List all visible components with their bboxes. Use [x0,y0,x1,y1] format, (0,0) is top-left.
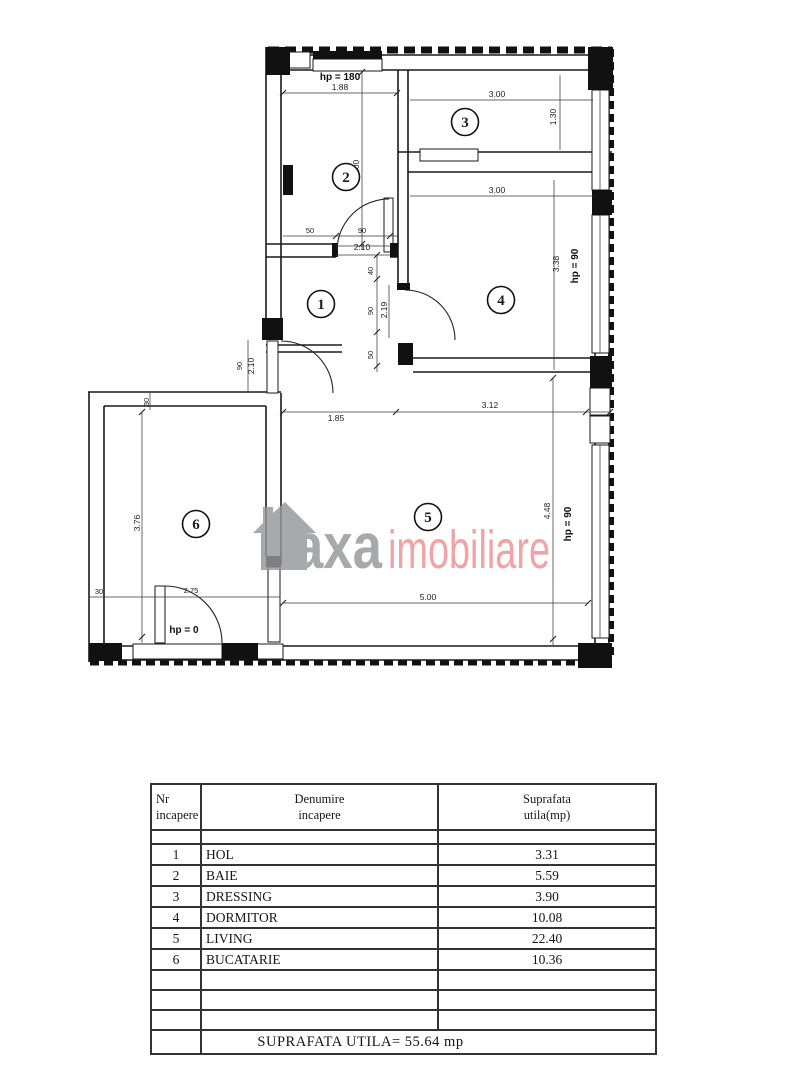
wall-niche [590,388,610,415]
window-bath [313,59,382,71]
dim-30-top: 30 [142,398,151,406]
cell-name: BAIE [201,865,438,886]
header-suprafata-line2: utila(mp) [524,808,571,822]
table-row: 3 DRESSING 3.90 [151,886,656,907]
room-number-4: 4 [497,293,505,309]
cell-area: 22.40 [438,928,656,949]
dim-hp90-bedroom: hp = 90 [570,248,581,283]
cell-area: 3.90 [438,886,656,907]
dim-219: 2.19 [379,301,389,318]
dim-hp0: hp = 0 [169,625,199,636]
dim-500: 5.00 [420,592,437,602]
window-right-top [592,90,609,190]
room-label-6: 6 [183,511,210,538]
cell-area: 10.36 [438,949,656,970]
door-leaf-kitchen [268,567,280,642]
dim-300-dressing: 3.00 [489,89,506,99]
room-label-5: 5 [415,504,442,531]
cell-name: HOL [201,844,438,865]
dim-50: 50 [306,226,314,235]
dim-90: 90 [358,226,366,235]
dim-130: 1.30 [548,108,558,125]
footer-empty-cell [151,1030,201,1054]
room-number-1: 1 [317,297,325,313]
door-arc-bedroom [405,290,455,340]
room-label-2: 2 [333,164,360,191]
dim-30-left: 30 [95,587,103,596]
header-denumire: Denumire incapere [201,784,438,830]
dim-50b: 50 [366,351,375,359]
cell-name: LIVING [201,928,438,949]
watermark: axa imobiliare [253,502,550,582]
cell-name: DORMITOR [201,907,438,928]
dim-376: 3.76 [132,514,142,531]
sliding-door-dressing [420,149,478,161]
empty-row [151,990,656,1010]
table-row: 6 BUCATARIE 10.36 [151,949,656,970]
room-label-1: 1 [308,291,335,318]
dim-90b: 90 [366,307,375,315]
areas-table: Nr incapere Denumire incapere Suprafata … [150,783,657,1055]
wall-panel [288,52,310,68]
cell-nr: 2 [151,865,201,886]
scanned-floor-plan-page: hp = 180 1.88 3.00 3.00 1.30 3.00 3.38 h… [0,0,800,1075]
watermark-brand-axa: axa [294,510,382,582]
cell-area: 3.31 [438,844,656,865]
dim-185: 1.85 [328,413,345,423]
dim-338: 3.38 [551,255,561,272]
watermark-brand-imobiliare: imobiliare [388,520,550,580]
footer-row: SUPRAFATA UTILA= 55.64 mp [151,1030,656,1054]
door-leaf-french-window [155,586,165,643]
cell-name: DRESSING [201,886,438,907]
room-number-3: 3 [461,115,469,131]
room-label-4: 4 [488,287,515,314]
room-labels: 1 2 3 4 5 6 [183,109,515,538]
room-label-3: 3 [452,109,479,136]
table-row: 1 HOL 3.31 [151,844,656,865]
cell-area: 10.08 [438,907,656,928]
dim-300-bedroom: 3.00 [489,185,506,195]
dim-40: 40 [366,267,375,275]
header-nr: Nr incapere [151,784,201,830]
window-living [592,445,609,638]
dim-312: 3.12 [482,400,499,410]
cell-nr: 3 [151,886,201,907]
wall-niche [590,416,610,443]
total-area-label: SUPRAFATA UTILA= 55.64 mp [201,1030,656,1054]
empty-row [151,1010,656,1030]
floor-plan-svg: hp = 180 1.88 3.00 3.00 1.30 3.00 3.38 h… [0,0,800,720]
table-row: 2 BAIE 5.59 [151,865,656,886]
dim-448: 4.48 [542,502,552,519]
dim-entry-90: 90 [235,362,244,370]
table-header-row: Nr incapere Denumire incapere Suprafata … [151,784,656,830]
cell-nr: 4 [151,907,201,928]
window-kitchen-door [133,644,222,659]
dim-hp90-living: hp = 90 [563,506,574,541]
cell-nr: 5 [151,928,201,949]
window-bedroom [592,215,609,353]
cell-area: 5.59 [438,865,656,886]
room-number-2: 2 [342,170,350,186]
dim-210: 2.10 [354,242,371,252]
window-bottom-small [257,644,283,659]
cell-nr: 1 [151,844,201,865]
table-row: 5 LIVING 22.40 [151,928,656,949]
cell-name: BUCATARIE [201,949,438,970]
door-arc-entrance [281,341,333,393]
room-number-5: 5 [424,510,432,526]
room-number-6: 6 [192,517,200,533]
dim-entry-210: 2.10 [246,357,256,374]
spacer-row [151,830,656,844]
door-leaf-entrance [267,341,278,393]
dim-275: 2.75 [184,586,199,595]
header-suprafata-line1: Suprafata [523,792,571,806]
header-suprafata: Suprafata utila(mp) [438,784,656,830]
table-row: 4 DORMITOR 10.08 [151,907,656,928]
empty-row [151,970,656,990]
header-nr-line2: incapere [156,808,198,822]
header-denumire-line1: Denumire [295,792,345,806]
header-nr-line1: Nr [156,792,169,806]
areas-table-wrap: Nr incapere Denumire incapere Suprafata … [150,783,657,1055]
radiator [283,165,293,195]
cell-nr: 6 [151,949,201,970]
dim-188: 1.88 [332,82,349,92]
header-denumire-line2: incapere [298,808,340,822]
